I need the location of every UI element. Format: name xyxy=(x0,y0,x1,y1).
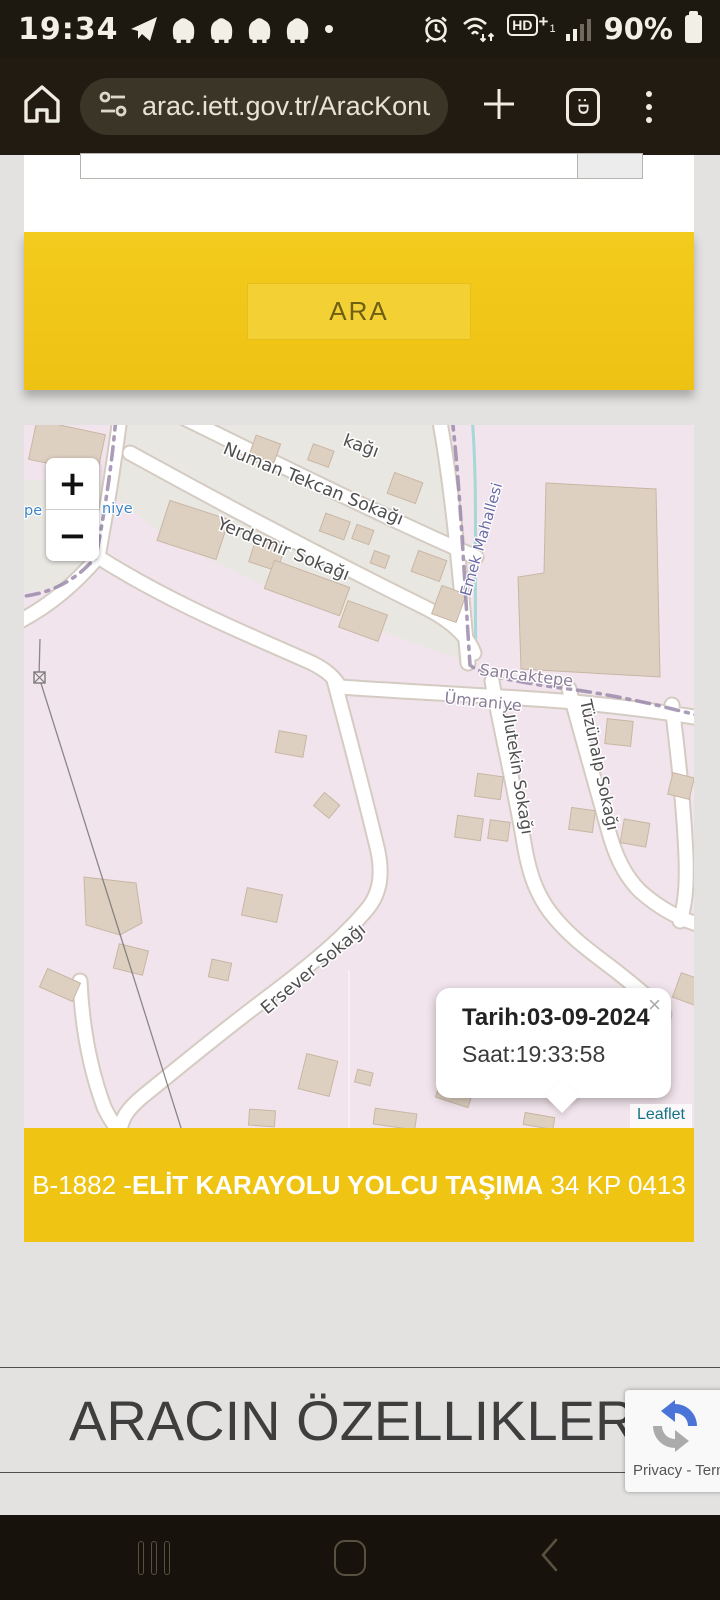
search-input[interactable] xyxy=(80,153,577,179)
popup-date: Tarih:03-09-2024 xyxy=(462,1004,657,1032)
app-notification-icon xyxy=(283,15,311,43)
telegram-notification-icon xyxy=(129,15,159,43)
place-label-left: pe xyxy=(24,503,42,519)
map-popup: Tarih:03-09-2024 Saat:19:33:58 × xyxy=(436,988,671,1098)
zoom-out-button[interactable]: − xyxy=(46,510,99,561)
app-notification-icon xyxy=(207,15,235,43)
search-panel: ARA xyxy=(24,232,694,390)
alarm-icon xyxy=(421,14,451,44)
recaptcha-icon xyxy=(647,1398,703,1459)
phone-screen: 19:34 xyxy=(0,0,720,1600)
new-tab-button[interactable] xyxy=(480,85,518,128)
hdplus-network-icon: HD+1 xyxy=(507,14,555,44)
leaflet-attribution-link[interactable]: Leaflet xyxy=(630,1104,692,1128)
map-zoom-control: + − xyxy=(46,458,99,561)
recaptcha-terms[interactable]: Privacy - Terms xyxy=(633,1462,720,1479)
ara-search-button[interactable]: ARA xyxy=(247,283,471,340)
app-notification-icon xyxy=(169,15,197,43)
place-label-right: niye xyxy=(102,501,133,517)
vehicle-properties-section: ARACIN ÖZELLIKLERI xyxy=(0,1367,720,1473)
android-navbar xyxy=(0,1515,720,1600)
url-bar[interactable]: arac.iett.gov.tr/AracKonumu xyxy=(80,78,448,135)
status-bar: 19:34 xyxy=(0,0,720,58)
vehicle-plate: 34 KP 0413 xyxy=(543,1170,686,1201)
tab-switcher-button[interactable]: :D xyxy=(566,88,600,126)
webpage: ARA xyxy=(0,155,720,1515)
vehicle-code: B-1882 - xyxy=(32,1170,132,1201)
back-button[interactable] xyxy=(538,1537,560,1578)
app-notification-icon xyxy=(245,15,273,43)
vehicle-info-bar: B-1882 -ELİT KARAYOLU YOLCU TAŞIMA 34 KP… xyxy=(24,1128,694,1242)
wifi-icon xyxy=(461,14,497,44)
vehicle-operator: ELİT KARAYOLU YOLCU TAŞIMA xyxy=(132,1170,543,1201)
recents-button[interactable] xyxy=(138,1541,170,1575)
clock: 19:34 xyxy=(18,12,119,47)
battery-icon xyxy=(685,15,702,43)
battery-percent: 90% xyxy=(604,12,673,46)
zoom-in-button[interactable]: + xyxy=(46,458,99,510)
signal-strength-icon xyxy=(566,16,594,42)
home-button[interactable] xyxy=(22,83,62,130)
popup-close-icon[interactable]: × xyxy=(648,994,661,1016)
url-text[interactable]: arac.iett.gov.tr/AracKonumu xyxy=(142,91,430,122)
more-notifications-dot xyxy=(325,25,333,33)
home-nav-button[interactable] xyxy=(334,1540,366,1576)
search-dropdown[interactable] xyxy=(577,153,643,179)
browser-toolbar: arac.iett.gov.tr/AracKonumu :D xyxy=(0,58,720,155)
browser-menu-button[interactable] xyxy=(646,91,652,123)
leaflet-map[interactable]: kağı Numan Tekcan Sokağı Yerdemir Sokağı… xyxy=(24,425,694,1128)
section-heading: ARACIN ÖZELLIKLERI xyxy=(69,1388,651,1453)
popup-time: Saat:19:33:58 xyxy=(462,1041,657,1068)
recaptcha-badge[interactable]: Privacy - Terms xyxy=(625,1390,720,1492)
search-card xyxy=(24,155,694,232)
site-settings-icon[interactable] xyxy=(98,89,128,124)
